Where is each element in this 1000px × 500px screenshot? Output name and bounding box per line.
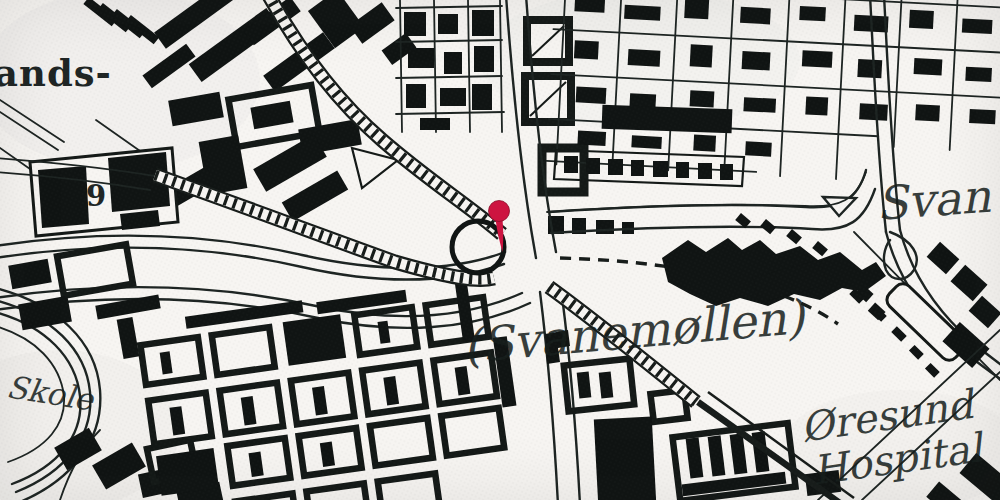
label-partial-right: Svan [874,169,992,231]
map-canvas: ands- 9 Skole (Svanemøllen) Svan Øresund… [0,0,1000,500]
historical-map[interactable]: ands- 9 Skole (Svanemøllen) Svan Øresund… [0,0,1000,500]
label-partial-top-left: ands- [0,51,112,95]
label-building-number: 9 [86,179,106,213]
